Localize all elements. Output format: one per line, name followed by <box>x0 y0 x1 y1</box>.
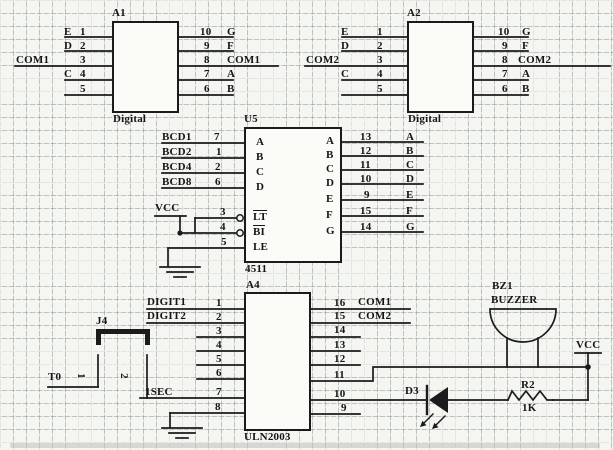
a1-left-net: E <box>64 27 72 37</box>
a2-display-symbol <box>305 22 610 112</box>
u5-input-net: BCD2 <box>162 147 192 157</box>
u5-control-port: LE <box>253 242 268 252</box>
d3-ref: D3 <box>405 386 419 396</box>
junction-dot <box>585 364 591 370</box>
a2-right-pin: 6 <box>502 84 508 94</box>
d3-led-symbol <box>420 386 508 429</box>
a1-left-pin: 4 <box>80 69 86 79</box>
u5-output-pin: 14 <box>360 222 371 232</box>
a2-left-pin: 1 <box>377 27 383 37</box>
t0-net-label: T0 <box>48 372 61 382</box>
a2-right-net: F <box>522 41 529 51</box>
a1-left-pin: 5 <box>80 84 86 94</box>
a2-left-pin: 4 <box>377 69 383 79</box>
a4-left-pin: 8 <box>215 402 221 412</box>
u5-decoder-symbol <box>155 128 423 277</box>
a2-ref: A2 <box>407 8 421 18</box>
u5-output-pin: 12 <box>360 146 371 156</box>
u5-input-net: BCD1 <box>162 132 192 142</box>
u5-input-port: A <box>256 137 264 147</box>
u5-output-pin: 11 <box>360 160 371 170</box>
a2-right-pin: 9 <box>502 41 508 51</box>
a4-right-pin: 16 <box>334 298 345 308</box>
a1-footer: Digital <box>113 114 146 124</box>
j4-pin2: 2 <box>119 373 129 379</box>
a1-right-pin: 9 <box>204 41 210 51</box>
vcc-label: VCC <box>155 203 179 213</box>
u5-output-net: G <box>406 222 415 232</box>
u5-input-pin: 7 <box>214 132 220 142</box>
a4-left-pin: 7 <box>216 387 222 397</box>
a1-right-net: COM1 <box>227 55 260 65</box>
u5-control-port: BI <box>253 227 265 237</box>
a4-right-pin: 13 <box>334 340 345 350</box>
u5-output-port: E <box>326 194 334 204</box>
active-low-bubble <box>237 230 243 236</box>
a1-right-net: G <box>227 27 236 37</box>
u5-output-port: G <box>326 226 335 236</box>
pin11-wire <box>310 367 588 381</box>
bz1-buzzer-symbol <box>490 309 556 367</box>
u5-output-net: B <box>406 146 414 156</box>
a2-right-net: A <box>522 69 530 79</box>
u5-output-net: A <box>406 132 414 142</box>
a1-left-pin: 1 <box>80 27 86 37</box>
u5-output-port: D <box>326 178 334 188</box>
a2-left-net: D <box>341 41 349 51</box>
a4-left-pin: 1 <box>216 298 222 308</box>
led-emission-arrows <box>420 414 445 429</box>
a2-left-pin: 3 <box>377 55 383 65</box>
u5-input-net: BCD8 <box>162 177 192 187</box>
a4-left-pin: 2 <box>216 312 222 322</box>
a1-right-pin: 10 <box>200 27 211 37</box>
u5-control-port: LT <box>253 212 267 222</box>
u5-input-port: C <box>256 167 264 177</box>
u5-output-net: C <box>406 160 414 170</box>
vcc-symbol <box>553 353 601 400</box>
a2-right-net: G <box>522 27 531 37</box>
r2-value: 1K <box>522 403 536 413</box>
u5-input-pin: 2 <box>215 162 221 172</box>
a1-right-pin: 8 <box>204 55 210 65</box>
a2-right-net: B <box>522 84 530 94</box>
u5-output-net: E <box>406 190 414 200</box>
a1-right-pin: 6 <box>204 84 210 94</box>
a2-footer: Digital <box>408 114 441 124</box>
a4-ref: A4 <box>246 280 260 290</box>
j4-ref: J4 <box>96 316 107 326</box>
a2-left-pin: 2 <box>377 41 383 51</box>
u5-control-pin: 4 <box>220 222 226 232</box>
a2-left-net: COM2 <box>306 55 339 65</box>
a4-right-net: COM1 <box>358 297 391 307</box>
a2-right-pin: 8 <box>502 55 508 65</box>
a2-right-pin: 10 <box>498 27 509 37</box>
ground-symbol <box>160 248 245 277</box>
a4-right-pin: 11 <box>334 370 345 380</box>
a4-left-pin: 4 <box>216 340 222 350</box>
u5-output-net: D <box>406 174 414 184</box>
a4-left-pin: 5 <box>216 354 222 364</box>
u5-output-port: C <box>326 164 334 174</box>
j4-connector-symbol <box>48 329 150 398</box>
a4-left-net: 1SEC <box>145 387 173 397</box>
u5-output-pin: 15 <box>360 206 371 216</box>
j4-pin1: 1 <box>76 373 86 379</box>
a2-right-net: COM2 <box>518 55 551 65</box>
a4-left-net: DIGIT1 <box>147 297 186 307</box>
a1-left-net: C <box>64 69 72 79</box>
u5-control-pin: 5 <box>221 237 227 247</box>
a4-right-net: COM2 <box>358 311 391 321</box>
a1-ref: A1 <box>112 8 126 18</box>
a2-left-net: C <box>341 69 349 79</box>
active-low-bubble <box>237 215 243 221</box>
u5-input-pin: 6 <box>215 177 221 187</box>
u5-input-port: B <box>256 152 264 162</box>
a4-right-pin: 14 <box>334 325 345 335</box>
a1-left-pin: 3 <box>80 55 86 65</box>
a2-right-pin: 7 <box>502 69 508 79</box>
a4-left-pin: 6 <box>216 368 222 378</box>
scan-artifact-band <box>10 443 600 448</box>
a4-right-pin: 12 <box>334 354 345 364</box>
r2-resistor-symbol <box>508 391 553 400</box>
vcc-label: VCC <box>576 340 600 350</box>
a4-right-pin: 15 <box>334 311 345 321</box>
a1-right-pin: 7 <box>204 69 210 79</box>
a4-left-net: DIGIT2 <box>147 311 186 321</box>
u5-output-pin: 9 <box>364 190 370 200</box>
bz1-type: BUZZER <box>491 295 537 305</box>
a1-right-net: A <box>227 69 235 79</box>
a4-right-pin: 9 <box>341 403 347 413</box>
u5-output-pin: 10 <box>360 174 371 184</box>
a4-part: ULN2003 <box>244 432 291 442</box>
r2-ref: R2 <box>521 380 535 390</box>
u5-ref: U5 <box>244 114 258 124</box>
u5-input-pin: 1 <box>216 147 222 157</box>
a4-left-pin: 3 <box>216 326 222 336</box>
u5-output-port: B <box>326 150 334 160</box>
u5-part: 4511 <box>245 264 267 274</box>
u5-control-pin: 3 <box>220 207 226 217</box>
u5-output-port: A <box>326 136 334 146</box>
a4-right-pin: 10 <box>334 389 345 399</box>
a2-left-net: E <box>341 27 349 37</box>
vcc-symbol <box>155 216 186 236</box>
a1-left-net: COM1 <box>16 55 49 65</box>
a1-right-net: B <box>227 84 235 94</box>
junction-dot <box>177 230 182 235</box>
u5-output-net: F <box>406 206 413 216</box>
a2-left-pin: 5 <box>377 84 383 94</box>
ground-symbol <box>162 413 202 438</box>
u5-output-port: F <box>326 210 333 220</box>
a1-right-net: F <box>227 41 234 51</box>
a1-left-pin: 2 <box>80 41 86 51</box>
u5-output-pin: 13 <box>360 132 371 142</box>
a1-display-symbol <box>15 22 278 112</box>
u5-input-port: D <box>256 182 264 192</box>
bz1-ref: BZ1 <box>492 281 513 291</box>
a1-left-net: D <box>64 41 72 51</box>
u5-input-net: BCD4 <box>162 162 192 172</box>
schematic-canvas: A1 Digital E D COM1 C 1 2 3 4 5 10 9 8 7… <box>0 0 613 450</box>
